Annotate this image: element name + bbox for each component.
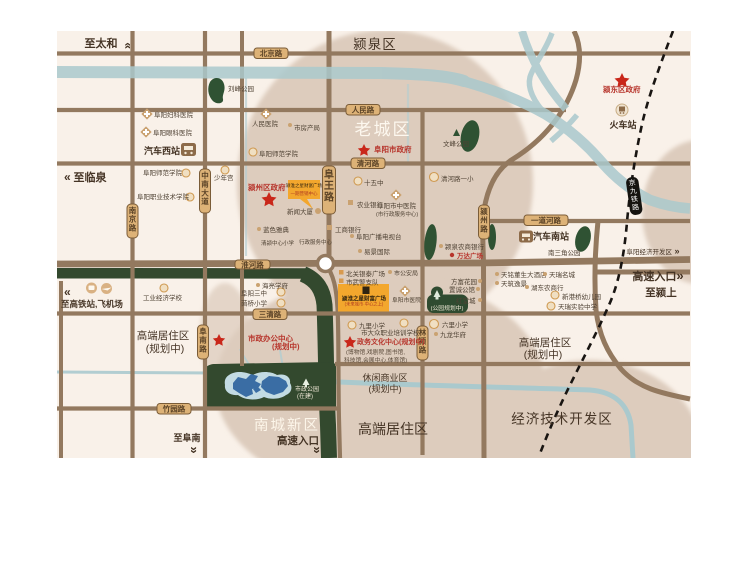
svg-text:经济技术开发区: 经济技术开发区 [511,412,613,427]
svg-text:老城区: 老城区 [355,120,412,139]
svg-text:阜阳眼科医院: 阜阳眼科医院 [153,128,193,137]
svg-text:南城新区: 南城新区 [254,417,320,434]
svg-text:路: 路 [199,343,207,353]
svg-text:刘峰公园: 刘峰公园 [228,84,254,93]
svg-text:天瑞名城: 天瑞名城 [549,270,576,279]
svg-text:(市行政服务中心): (市行政服务中心) [376,210,418,218]
svg-text:万达广场: 万达广场 [456,251,484,260]
svg-text:至颍上: 至颍上 [645,286,677,299]
svg-text:人民医院: 人民医院 [252,119,279,128]
svg-text:州: 州 [479,216,488,225]
svg-text:市公安局: 市公安局 [394,270,418,278]
svg-text:颍: 颍 [479,206,488,216]
svg-text:阜阳师范学院: 阜阳师范学院 [259,149,299,158]
svg-text:林: 林 [419,327,427,337]
svg-text:清颍中心小学: 清颍中心小学 [261,239,295,247]
svg-text:颍泉区: 颍泉区 [353,36,397,52]
svg-text:(未来城市·中心之上): (未来城市·中心之上) [345,301,384,308]
svg-text:置诚公馆: 置诚公馆 [449,285,476,294]
svg-text:少年宫: 少年宫 [214,173,234,182]
svg-text:茴桥小学: 茴桥小学 [241,299,268,308]
svg-text:高端居住区: 高端居住区 [519,336,572,349]
svg-text:大: 大 [201,187,209,197]
svg-text:至临泉: 至临泉 [74,170,108,184]
svg-text:北京路: 北京路 [260,48,283,58]
svg-text:海亮学府: 海亮学府 [262,281,289,290]
svg-text:«: « [64,170,71,184]
svg-text:阜阳师范学院: 阜阳师范学院 [143,168,183,177]
svg-text:市房产局: 市房产局 [294,123,320,132]
svg-text:九龙华府: 九龙华府 [440,330,467,339]
svg-text:三清路: 三清路 [259,309,282,319]
svg-text:(公园规划中): (公园规划中) [431,304,464,312]
svg-text:道: 道 [201,196,209,206]
svg-text:阜阳市中医院: 阜阳市中医院 [377,201,417,210]
svg-text:淮河路: 淮河路 [241,259,264,269]
svg-text:红堂城: 红堂城 [456,296,476,305]
svg-text:路: 路 [129,222,137,232]
svg-text:高速入口»: 高速入口» [632,268,683,283]
svg-text:北关银泰广场: 北关银泰广场 [346,269,386,278]
svg-text:高速入口: 高速入口 [277,434,319,447]
svg-text:市武警支队: 市武警支队 [346,278,379,287]
svg-text:南: 南 [129,205,137,215]
svg-text:清河路: 清河路 [357,158,380,168]
svg-text:新港桥幼儿园: 新港桥幼儿园 [562,292,601,301]
svg-text:方富花园: 方富花园 [451,277,477,286]
svg-text:»: » [187,446,202,453]
svg-text:南三角公园: 南三角公园 [548,248,581,257]
svg-text:政务文化中心(规划中): 政务文化中心(规划中) [357,337,425,346]
svg-text:工商银行: 工商银行 [335,225,362,234]
svg-text:工业经济学校: 工业经济学校 [143,293,183,302]
svg-text:南: 南 [201,179,209,189]
svg-text:至太和: 至太和 [85,36,118,50]
svg-text:科技馆,会展中心,体育馆): 科技馆,会展中心,体育馆) [344,356,407,364]
svg-text:阜: 阜 [199,326,207,336]
svg-text:市政公园: 市政公园 [295,385,319,393]
svg-text:颍淮之星财富广场: 颍淮之星财富广场 [286,182,322,189]
svg-text:«: « [64,285,71,299]
svg-text:休闲商业区: 休闲商业区 [362,372,407,383]
svg-text:王: 王 [324,180,334,192]
svg-text:»: » [310,446,325,453]
svg-text:天铭董生大酒店: 天铭董生大酒店 [501,270,547,279]
svg-text:蓝色雅典: 蓝色雅典 [263,225,290,234]
svg-text:九里小学: 九里小学 [359,321,386,330]
svg-text:天瑞实验中学: 天瑞实验中学 [558,302,598,311]
svg-text:汽车西站: 汽车西站 [144,145,180,156]
svg-text:颍泉农商银行: 颍泉农商银行 [445,242,485,251]
svg-text:阜阳市政府: 阜阳市政府 [374,144,412,154]
svg-text:(规划中): (规划中) [369,383,402,394]
svg-text:人民路: 人民路 [352,105,375,115]
svg-text:颍东区政府: 颍东区政府 [602,84,641,94]
svg-text:高端居住区: 高端居住区 [137,329,190,342]
svg-text:阜阳广播电视台: 阜阳广播电视台 [356,232,402,241]
svg-text:至高铁站,飞机场: 至高铁站,飞机场 [61,299,123,309]
svg-text:汽车南站: 汽车南站 [533,231,569,242]
svg-text:行政服务中心: 行政服务中心 [299,238,333,246]
svg-text:一期营销中心: 一期营销中心 [291,190,318,197]
svg-text:南: 南 [199,335,207,345]
svg-text:中: 中 [201,170,209,180]
svg-text:十五中: 十五中 [364,178,384,187]
svg-text:竹园路: 竹园路 [162,404,186,414]
svg-text:六里小学: 六里小学 [442,320,469,329]
svg-text:颍州区政府: 颍州区政府 [247,182,286,192]
svg-text:路: 路 [480,223,488,233]
svg-text:文峰公园: 文峰公园 [443,139,469,148]
svg-text:阜阳妇科医院: 阜阳妇科医院 [154,110,194,119]
svg-text:新闻大厦: 新闻大厦 [287,207,314,216]
svg-text:阜阳市医院: 阜阳市医院 [392,296,421,304]
svg-text:天筑逸景: 天筑逸景 [501,279,528,288]
svg-text:一道河路: 一道河路 [531,215,561,225]
svg-text:阜阳三中: 阜阳三中 [241,289,267,298]
svg-text:至阜南: 至阜南 [173,432,200,443]
svg-text:(博物馆,戏剧院,图书馆,: (博物馆,戏剧院,图书馆, [346,348,405,356]
svg-text:路: 路 [324,190,335,203]
svg-text:(在建): (在建) [297,392,313,400]
svg-text:易景国际: 易景国际 [364,247,391,256]
svg-text:市大众职业培训学校: 市大众职业培训学校 [361,328,420,337]
svg-text:(规划中): (规划中) [272,341,300,351]
svg-text:清河路一小: 清河路一小 [441,174,474,183]
svg-text:京: 京 [129,214,137,224]
svg-text:火车站: 火车站 [609,119,636,130]
svg-text:阜: 阜 [324,168,334,181]
svg-text:(规划中): (规划中) [524,348,563,361]
svg-text:湖东农商行: 湖东农商行 [531,283,564,292]
svg-text:高端居住区: 高端居住区 [358,421,428,437]
svg-text:阜阳职业技术学院: 阜阳职业技术学院 [137,192,190,201]
svg-text:(规划中): (规划中) [146,342,185,355]
svg-text:»: » [120,42,134,49]
